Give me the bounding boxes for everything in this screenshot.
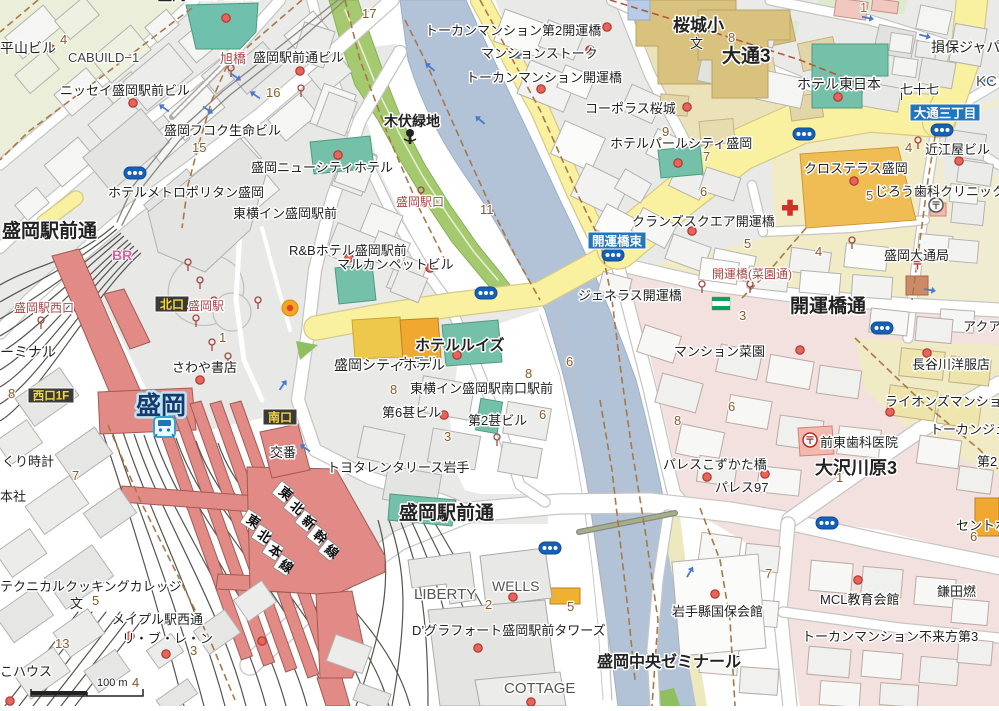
svg-text:東横イン盛岡駅前: 東横イン盛岡駅前 (233, 206, 337, 221)
svg-text:南口: 南口 (268, 410, 292, 425)
svg-text:トーカンマンション開運橋: トーカンマンション開運橋 (466, 70, 622, 85)
svg-text:トーカンマンション第2開運橋: トーカンマンション第2開運橋 (425, 23, 601, 38)
svg-text:クロステラス盛岡: クロステラス盛岡 (804, 161, 908, 176)
svg-text:15: 15 (192, 140, 206, 155)
svg-text:長谷川洋服店: 長谷川洋服店 (912, 357, 990, 372)
svg-text:アクア: アクア (963, 319, 999, 334)
svg-text:盛岡駅前通ビル: 盛岡駅前通ビル (253, 50, 344, 65)
svg-text:4: 4 (60, 32, 67, 47)
svg-text:東横イン盛岡駅南口駅前: 東横イン盛岡駅南口駅前 (410, 381, 553, 396)
svg-text:7: 7 (765, 566, 772, 581)
svg-text:8: 8 (8, 386, 15, 401)
svg-text:マルカンペットビル: マルカンペットビル (337, 257, 454, 272)
svg-text:LIBERTY: LIBERTY (414, 586, 476, 603)
svg-text:セントホ: セントホ (956, 518, 999, 533)
svg-text:11: 11 (480, 202, 494, 217)
svg-text:マンションストーク: マンションストーク (481, 46, 598, 61)
svg-text:4: 4 (132, 675, 139, 690)
svg-text:1: 1 (860, 0, 867, 15)
svg-text:8: 8 (390, 382, 397, 397)
svg-text:第6甚ビル: 第6甚ビル (382, 405, 441, 420)
svg-text:西口1F: 西口1F (33, 390, 69, 403)
svg-text:文: 文 (70, 596, 83, 611)
svg-text:メイプル駅西通: メイプル駅西通 (112, 612, 203, 627)
svg-text:4: 4 (905, 140, 912, 155)
svg-text:〒: 〒 (805, 435, 815, 447)
svg-text:盛岡駅前通: 盛岡駅前通 (2, 219, 98, 242)
svg-text:北口: 北口 (160, 297, 184, 312)
svg-text:6: 6 (566, 354, 573, 369)
svg-text:4: 4 (815, 244, 822, 259)
svg-text:平山ビル: 平山ビル (0, 40, 56, 56)
svg-text:テクニカルクッキングカレッジ: テクニカルクッキングカレッジ (0, 579, 182, 594)
svg-text:盛岡シティホテル: 盛岡シティホテル (334, 357, 445, 373)
svg-text:盛岡: 盛岡 (136, 391, 186, 420)
svg-text:七十七: 七十七 (900, 82, 939, 97)
svg-text:文: 文 (690, 36, 703, 51)
svg-text:ホテルルイズ: ホテルルイズ (415, 336, 505, 354)
svg-text:旭橋: 旭橋 (220, 51, 246, 66)
svg-text:16: 16 (266, 85, 280, 100)
svg-text:大沢川原3: 大沢川原3 (815, 457, 897, 478)
svg-text:盛岡NEW WING: 盛岡NEW WING (158, 0, 261, 3)
svg-text:リ・ブ・レ・ン: リ・ブ・レ・ン (122, 631, 213, 646)
svg-text:ホテル東日本: ホテル東日本 (797, 76, 881, 92)
svg-text:COTTAGE: COTTAGE (504, 680, 575, 697)
svg-text:コーポラス桜城: コーポラス桜城 (585, 101, 676, 116)
svg-text:盛岡駅: 盛岡駅 (188, 298, 224, 313)
svg-text:6: 6 (700, 184, 707, 199)
svg-text:5: 5 (567, 599, 574, 614)
svg-text:クランズスクエア開運橋: クランズスクエア開運橋 (632, 214, 775, 229)
svg-text:トーカンマンション不来方第3: トーカンマンション不来方第3 (802, 629, 978, 644)
svg-text:近江屋ビル: 近江屋ビル (925, 142, 990, 157)
svg-text:D’グラフォート盛岡駅前タワーズ: D’グラフォート盛岡駅前タワーズ (412, 623, 606, 638)
svg-text:3: 3 (444, 429, 451, 444)
svg-text:5: 5 (866, 188, 873, 203)
svg-text:交番: 交番 (270, 445, 296, 460)
svg-text:R&Bホテル盛岡駅前: R&Bホテル盛岡駅前 (289, 243, 407, 258)
svg-text:大通三丁目: 大通三丁目 (914, 106, 977, 121)
svg-text:パレスこずかた橋: パレスこずかた橋 (663, 457, 767, 472)
svg-text:5: 5 (744, 236, 751, 251)
svg-text:ライオンズマンション: ライオンズマンション (885, 394, 999, 409)
svg-text:さわや書店: さわや書店 (172, 360, 237, 375)
svg-text:桜城小: 桜城小 (673, 15, 724, 35)
svg-text:パレス97: パレス97 (715, 480, 768, 495)
svg-text:盛岡大通局: 盛岡大通局 (884, 248, 949, 263)
svg-text:100 m: 100 m (97, 677, 128, 689)
svg-text:木伏緑地: 木伏緑地 (383, 113, 440, 129)
svg-text:1: 1 (836, 470, 843, 485)
svg-text:盛岡駅口: 盛岡駅口 (396, 194, 444, 209)
svg-text:2: 2 (485, 597, 492, 612)
svg-text:第2: 第2 (977, 454, 997, 469)
svg-text:前東歯科医院: 前東歯科医院 (820, 435, 898, 450)
svg-text:本社: 本社 (0, 489, 26, 504)
svg-text:大通3: 大通3 (722, 44, 771, 67)
svg-text:7: 7 (72, 468, 79, 483)
svg-text:3: 3 (190, 643, 197, 658)
svg-text:盛岡駅前通: 盛岡駅前通 (399, 501, 495, 524)
svg-text:開運橋(菜園通): 開運橋(菜園通) (712, 267, 792, 281)
svg-text:第2甚ビル: 第2甚ビル (468, 413, 527, 428)
svg-text:BR: BR (112, 247, 132, 263)
svg-text:6: 6 (728, 399, 735, 414)
svg-text:1: 1 (219, 330, 226, 345)
svg-text:開運橋束: 開運橋束 (592, 234, 643, 249)
svg-text:こハウス: こハウス (0, 664, 52, 679)
svg-text:開運橋通: 開運橋通 (790, 294, 867, 317)
svg-text:岩手縣国保会館: 岩手縣国保会館 (672, 604, 763, 619)
svg-text:損保ジャパン: 損保ジャパン (931, 39, 999, 55)
svg-text:〒: 〒 (931, 200, 941, 212)
svg-text:6: 6 (970, 529, 977, 544)
svg-text:じろう歯科クリニック: じろう歯科クリニック (875, 184, 999, 199)
svg-text:17: 17 (362, 6, 376, 21)
svg-text:MCL教育会館: MCL教育会館 (820, 592, 899, 607)
svg-text:5: 5 (92, 593, 99, 608)
svg-text:ホテルパールシティ盛岡: ホテルパールシティ盛岡 (610, 136, 752, 151)
svg-text:盛岡フコク生命ビル: 盛岡フコク生命ビル (164, 123, 281, 138)
svg-text:7: 7 (703, 149, 710, 164)
svg-text:鎌田燃: 鎌田燃 (937, 584, 976, 599)
svg-text:くり時計: くり時計 (2, 454, 54, 469)
svg-text:8: 8 (728, 30, 735, 45)
svg-text:盛岡駅西口: 盛岡駅西口 (14, 300, 74, 315)
svg-text:盛岡中央ゼミナール: 盛岡中央ゼミナール (597, 652, 741, 671)
svg-text:CABUILD−1: CABUILD−1 (68, 50, 139, 65)
svg-text:6: 6 (539, 407, 546, 422)
svg-text:3: 3 (739, 308, 746, 323)
svg-text:ニッセイ盛岡駅前ビル: ニッセイ盛岡駅前ビル (60, 83, 190, 98)
svg-text:WELLS: WELLS (492, 578, 539, 594)
svg-text:ジェネラス開運橋: ジェネラス開運橋 (578, 288, 682, 303)
svg-text:トヨタレンタリース岩手: トヨタレンタリース岩手 (327, 460, 469, 475)
svg-text:KC: KC (976, 73, 997, 90)
svg-text:ホテルメトロポリタン盛岡: ホテルメトロポリタン盛岡 (108, 185, 264, 200)
svg-text:9: 9 (662, 124, 669, 139)
svg-text:8: 8 (525, 366, 532, 381)
svg-text:ーミナル: ーミナル (0, 344, 56, 360)
svg-text:8: 8 (674, 413, 681, 428)
svg-text:盛岡ニューシティホテル: 盛岡ニューシティホテル (251, 160, 393, 175)
svg-text:マンション菜園: マンション菜園 (674, 344, 765, 359)
svg-text:13: 13 (55, 636, 69, 651)
svg-text:トーカンジェ: トーカンジェ (930, 422, 999, 437)
